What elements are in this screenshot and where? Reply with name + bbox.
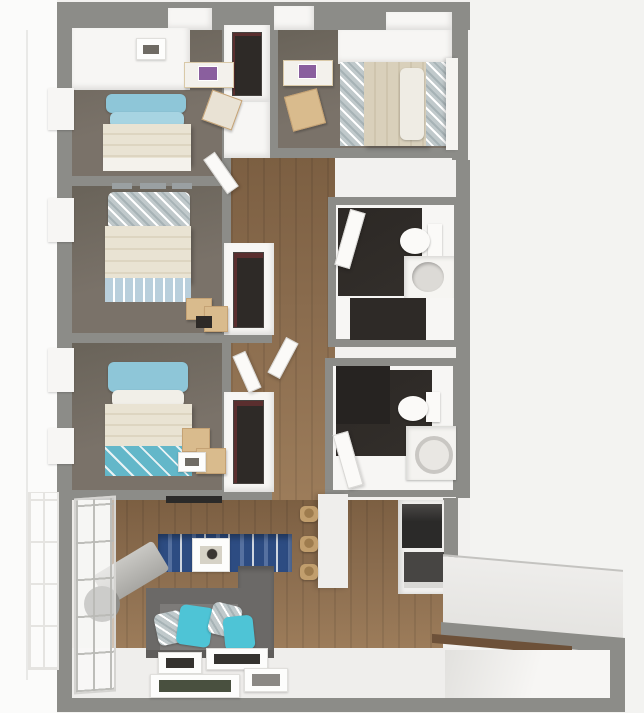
bedroom-1-upper-wall-block (72, 28, 190, 90)
bedroom-3-bed-pillow (108, 362, 188, 392)
bedroom-2-wall-decor-3 (172, 183, 192, 189)
bedroom-4-bed-headboard (446, 58, 458, 150)
bedroom-3-floor-frame (178, 452, 206, 472)
bedroom-4-laptop (298, 64, 317, 79)
bedroom-1-laptop (198, 66, 218, 81)
kitchen-range (404, 552, 444, 588)
window-sill-bed2 (48, 198, 74, 242)
kitchen-bar-stool-3 (300, 564, 318, 580)
bedroom-4-bed-left-trim (340, 62, 366, 146)
living-media-console (166, 496, 222, 503)
bedroom-1-bed-pillow-1 (106, 94, 186, 113)
bathroom-1-linen-closet (350, 298, 426, 340)
bedroom-2-dark-item (196, 316, 212, 328)
bathroom-2-toilet-bowl (398, 396, 428, 421)
balcony-rim-right (610, 644, 625, 704)
closet-low-clothes (233, 400, 264, 484)
closet-mid-clothes (233, 252, 264, 328)
window-sill-bed3-a (48, 348, 74, 392)
bedroom-1-wall-art (136, 38, 166, 60)
floorplan-render (0, 0, 644, 713)
bedroom-2-wall-decor-2 (140, 183, 166, 189)
kitchen-island (318, 494, 348, 588)
bedroom-2-bed-foot (105, 278, 191, 302)
bathroom-1-toilet-tank (428, 224, 442, 256)
living-coffee-table-frame (192, 538, 230, 572)
bedroom-3-bed-blanket (105, 404, 192, 448)
living-room-window-wall (74, 496, 116, 695)
floor-frame-2 (206, 648, 268, 670)
bedroom-4-bed-pillow (400, 68, 424, 140)
bathroom-2-dark-closet (336, 366, 390, 424)
window-sill-bed1 (48, 88, 74, 130)
bedroom-2-bed-pillows (108, 192, 190, 230)
bedroom-2-wall-decor-1 (112, 183, 132, 189)
kitchen-bar-stool-1 (300, 506, 318, 522)
kitchen-refrigerator (402, 504, 442, 548)
bedroom-4-upper-wall-block (338, 30, 452, 64)
outer-window-panel (28, 492, 59, 670)
wall-top-white-block-3 (386, 12, 452, 30)
kitchen-bar-stool-2 (300, 536, 318, 552)
floor-frame-1 (158, 652, 202, 674)
bathroom-2-washer-door (415, 436, 453, 474)
window-sill-bed3-b (48, 428, 74, 464)
sofa-pillow-teal-2 (222, 615, 255, 652)
bathroom-2-toilet-tank (426, 392, 440, 422)
floor-frame-3 (150, 674, 240, 698)
bedroom-4-bed-right-trim (426, 62, 448, 146)
wall-top-white-block-1 (168, 8, 212, 30)
closet-top-clothes (232, 32, 262, 96)
wall-bottom (57, 698, 625, 712)
bathroom-1-toilet-bowl (400, 228, 430, 254)
balcony-underside (445, 650, 613, 698)
wall-top-white-block-2 (274, 6, 314, 30)
wall-bed4-bottom (268, 148, 456, 158)
floor-frame-4 (244, 668, 288, 692)
bedroom-1-bed-foot-sheet (103, 158, 191, 171)
bedroom-2-bed-blanket (105, 226, 191, 282)
bathroom-1-linen-shelf (426, 298, 454, 340)
bathroom-1-sink (412, 262, 444, 292)
